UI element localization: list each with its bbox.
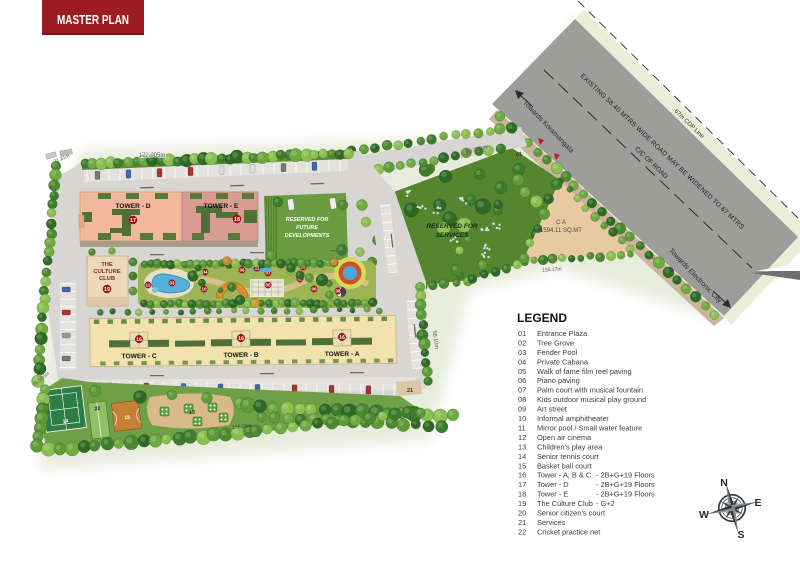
svg-text:MASTER PLAN: MASTER PLAN: [57, 13, 129, 27]
svg-text:CULTURE: CULTURE: [93, 269, 120, 275]
svg-text:TOWER - D: TOWER - D: [115, 203, 150, 210]
svg-text:Art street: Art street: [537, 405, 567, 414]
svg-text:21: 21: [407, 388, 413, 394]
svg-text:22: 22: [94, 406, 101, 413]
svg-text:CLUB: CLUB: [99, 276, 115, 282]
svg-text:03: 03: [518, 348, 526, 357]
svg-text:16: 16: [339, 335, 345, 341]
svg-text:S: S: [737, 529, 744, 541]
svg-text:Services: Services: [537, 518, 566, 527]
svg-text:09: 09: [518, 405, 526, 414]
svg-text:- 2B+G+19 Floors: - 2B+G+19 Floors: [596, 471, 655, 480]
svg-text:04: 04: [518, 357, 526, 366]
svg-text:SERVICES: SERVICES: [436, 232, 470, 239]
svg-text:06: 06: [518, 376, 526, 385]
svg-text:E: E: [754, 497, 761, 509]
svg-text:17: 17: [518, 480, 526, 489]
svg-text:172.005m: 172.005m: [139, 153, 166, 159]
svg-text:RESERVED FOR: RESERVED FOR: [286, 217, 329, 223]
svg-text:- 2B+G+19 Floors: - 2B+G+19 Floors: [596, 490, 655, 499]
svg-text:14: 14: [518, 452, 526, 461]
svg-text:03: 03: [169, 281, 175, 286]
svg-text:21: 21: [518, 518, 526, 527]
svg-text:FUTURE: FUTURE: [296, 225, 318, 231]
svg-text:THE: THE: [101, 262, 113, 268]
svg-text:16: 16: [238, 336, 244, 342]
svg-text:Entrance Plaza: Entrance Plaza: [537, 329, 588, 338]
svg-text:Senior tennis court: Senior tennis court: [537, 452, 599, 461]
svg-text:N: N: [720, 477, 728, 489]
svg-text:Basket ball court: Basket ball court: [537, 461, 592, 470]
svg-text:Open air cinema: Open air cinema: [537, 433, 592, 442]
svg-text:TOWER - B: TOWER - B: [224, 352, 259, 359]
svg-text:01: 01: [518, 329, 526, 338]
svg-text:02: 02: [518, 338, 526, 347]
svg-text:11: 11: [518, 424, 526, 433]
svg-text:The Culture Club: The Culture Club: [537, 499, 593, 508]
svg-text:09: 09: [311, 287, 317, 292]
svg-text:TOWER - A: TOWER - A: [325, 351, 360, 358]
svg-text:10: 10: [518, 414, 526, 423]
svg-text:07: 07: [518, 386, 526, 395]
svg-text:12: 12: [145, 283, 151, 288]
svg-text:13: 13: [189, 410, 195, 416]
svg-text:W: W: [699, 509, 709, 521]
svg-text:12: 12: [518, 433, 526, 442]
svg-text:DEVELOPMENTS: DEVELOPMENTS: [285, 233, 330, 239]
svg-text:Senior citizen’s court: Senior citizen’s court: [537, 509, 605, 518]
svg-text:20: 20: [518, 509, 526, 518]
svg-text:19: 19: [518, 499, 526, 508]
svg-text:18: 18: [234, 217, 240, 223]
svg-text:15: 15: [518, 461, 526, 470]
svg-text:15: 15: [124, 415, 131, 422]
svg-text:C A: C A: [556, 220, 566, 226]
svg-text:Tower - A, B & C: Tower - A, B & C: [537, 471, 592, 480]
svg-text:Tower - D: Tower - D: [537, 480, 569, 489]
svg-text:18: 18: [518, 490, 526, 499]
svg-text:13: 13: [518, 442, 526, 451]
svg-text:14: 14: [62, 419, 69, 426]
svg-text:Children’s play area: Children’s play area: [537, 442, 603, 451]
svg-text:RESERVED FOR: RESERVED FOR: [426, 223, 478, 230]
svg-text:Informal amphitheater: Informal amphitheater: [537, 414, 609, 423]
svg-text:10: 10: [201, 287, 207, 292]
svg-text:Piano paving: Piano paving: [537, 376, 580, 385]
svg-text:05: 05: [518, 367, 526, 376]
svg-text:05: 05: [265, 283, 271, 288]
svg-text:Kids outdoor musical play grou: Kids outdoor musical play ground: [537, 395, 646, 404]
svg-text:08: 08: [518, 395, 526, 404]
svg-text:Tower - E: Tower - E: [537, 490, 568, 499]
svg-text:LEGEND: LEGEND: [517, 311, 567, 325]
svg-text:- 2B+G+19 Floors: - 2B+G+19 Floors: [596, 480, 655, 489]
svg-text:TOWER - E: TOWER - E: [204, 203, 239, 210]
svg-text:Tree Grove: Tree Grove: [537, 338, 574, 347]
svg-text:19: 19: [104, 287, 110, 293]
svg-text:Cricket practice net: Cricket practice net: [537, 527, 600, 536]
svg-text:16: 16: [518, 471, 526, 480]
svg-text:Mirror pool / Small water feat: Mirror pool / Small water feature: [537, 424, 642, 433]
svg-text:Fender Pool: Fender Pool: [537, 348, 578, 357]
svg-text:Private Cabana: Private Cabana: [537, 357, 589, 366]
svg-text:16: 16: [136, 337, 142, 343]
svg-text:22: 22: [518, 527, 526, 536]
svg-text:1594.11 SQ.MT: 1594.11 SQ.MT: [540, 228, 582, 234]
svg-text:TOWER - C: TOWER - C: [122, 353, 157, 360]
svg-text:17: 17: [130, 218, 136, 224]
svg-text:Palm court with musical founta: Palm court with musical fountain: [537, 386, 643, 395]
svg-text:- G+2: - G+2: [596, 499, 615, 508]
svg-text:08: 08: [335, 289, 341, 294]
svg-text:06: 06: [239, 268, 245, 273]
svg-text:Walk of fame film reel paving: Walk of fame film reel paving: [537, 367, 632, 376]
